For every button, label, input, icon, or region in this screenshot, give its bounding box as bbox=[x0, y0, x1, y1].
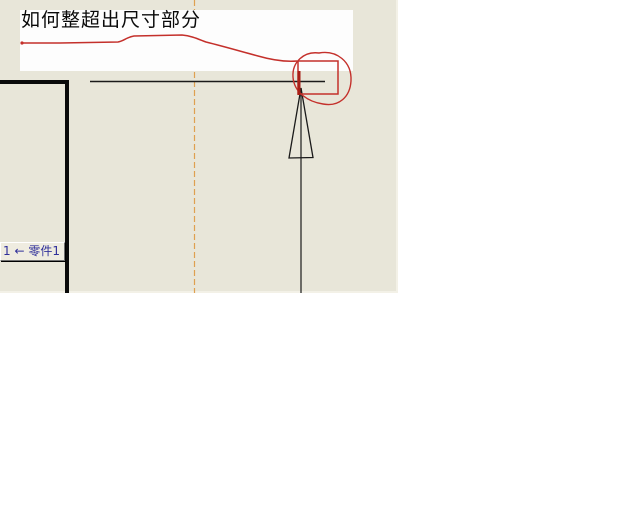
cad-drawing-viewport[interactable]: 如何整超出尺寸部分 1 ← 零件1 bbox=[0, 0, 398, 293]
annotation-question-text: 如何整超出尺寸部分 bbox=[21, 9, 351, 31]
part-balloon-label[interactable]: 1 ← 零件1 bbox=[0, 242, 65, 261]
screenshot-root: 如何整超出尺寸部分 1 ← 零件1 bbox=[0, 0, 640, 512]
